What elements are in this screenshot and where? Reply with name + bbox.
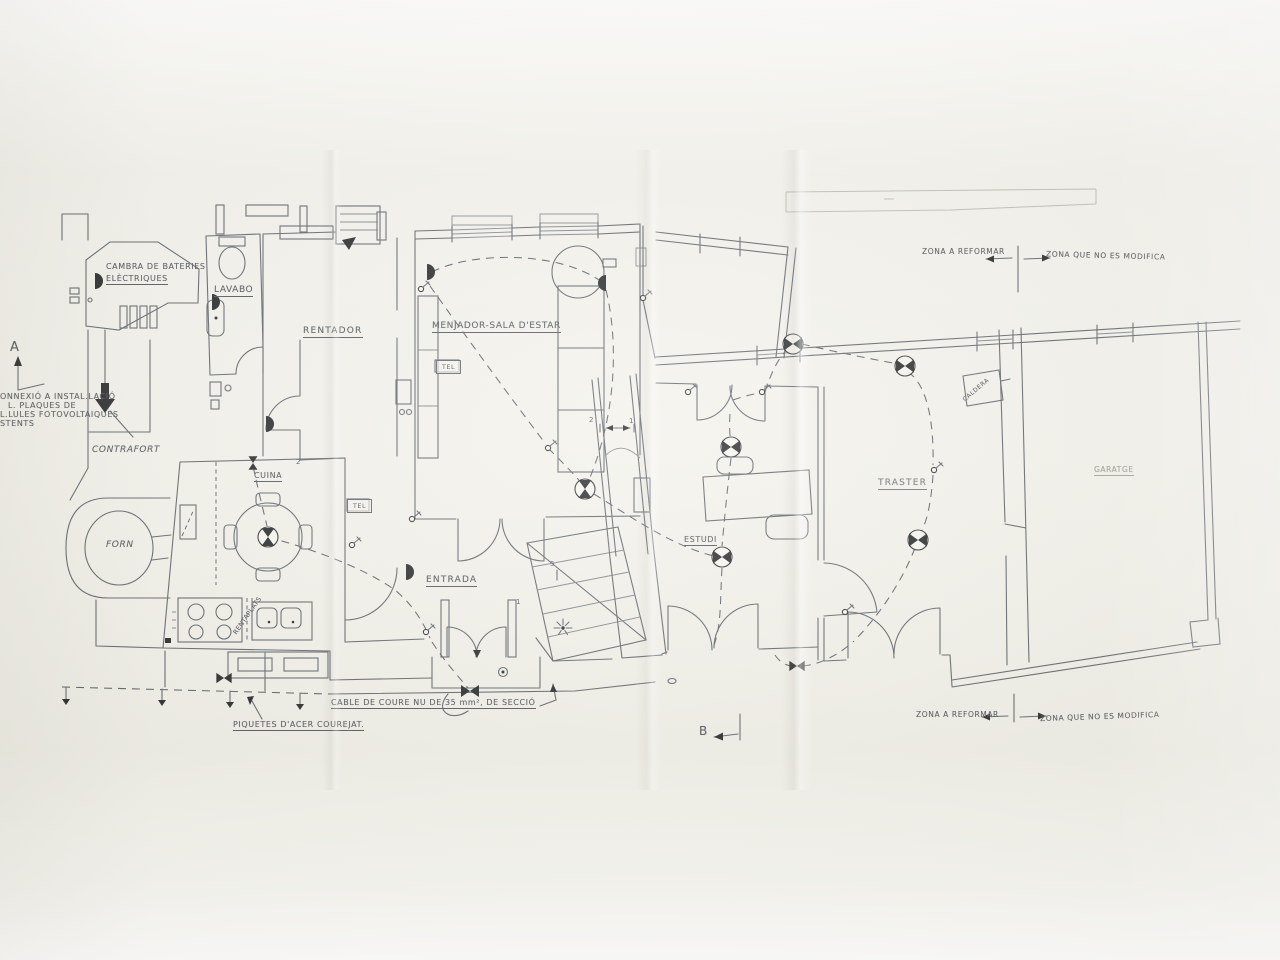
- tel-outlet-label: TEL: [347, 499, 372, 513]
- ground-stake-icon: [296, 693, 304, 710]
- room-label-garatge: GARATGE: [1094, 465, 1134, 476]
- sconce-icon: [598, 275, 606, 291]
- note-connexio-line1: ONNEXIÓ A INSTAL.LACIÓ: [0, 392, 116, 401]
- ground-stake-icon: [226, 691, 234, 708]
- wall-light-icon: [249, 456, 258, 470]
- section-marker-b-arrow: [714, 714, 740, 741]
- room-label-rentador: RENTADOR: [303, 326, 363, 338]
- sconce-icon: [95, 273, 103, 289]
- section-marker-b: B: [699, 724, 708, 738]
- note-connexio-line2: L. PLAQUES DE: [8, 401, 76, 410]
- wiring-cables: [253, 257, 933, 688]
- room-label-estudi: ESTUDI: [684, 535, 717, 546]
- zone-label-reformar-top: ZONA A REFORMAR: [922, 247, 1005, 256]
- ground-stake-icon: [158, 689, 166, 706]
- estudi-room: [656, 383, 877, 660]
- switch-icon: [418, 281, 430, 292]
- stair-count-number: 5: [550, 560, 554, 568]
- ceiling-light-icon: [783, 334, 803, 354]
- switch-icon: [685, 384, 697, 395]
- wall-light-icon: [461, 685, 479, 697]
- wall-light-icon: [216, 673, 231, 683]
- section-marker-a: A: [10, 340, 20, 355]
- dimension-number: 1: [516, 598, 520, 606]
- room-label-entrada: ENTRADA: [426, 575, 477, 587]
- floor-plan-linework: [0, 0, 1280, 960]
- dimension-number: 2: [296, 458, 300, 466]
- switch-icon: [423, 624, 435, 635]
- traster-room: [824, 328, 1029, 686]
- adjacent-sheet-edge: [786, 189, 1096, 212]
- ground-stake-icon: [62, 688, 70, 705]
- ceiling-light-icon: [895, 356, 915, 376]
- room-label-lavabo: LAVABO: [214, 285, 253, 297]
- switch-icon: [640, 290, 652, 301]
- ceiling-light-icon: [712, 547, 732, 567]
- dimension-number: 2: [589, 416, 593, 424]
- room-label-cuina: CUINA: [254, 471, 282, 482]
- room-label-menjador: MENJADOR-SALA D'ESTAR: [432, 321, 561, 333]
- room-label-cambra-line1: CAMBRA DE BATERIES: [106, 262, 206, 271]
- lavabo-room: [206, 234, 263, 409]
- ceiling-light-icon: [258, 527, 278, 547]
- label-contrafort: CONTRAFORT: [92, 445, 160, 455]
- note-cable: CABLE DE COURE NU DE 35 mm², DE SECCIÓ: [331, 698, 536, 709]
- ceiling-light-icon: [575, 479, 595, 499]
- garatge-room: [952, 322, 1220, 687]
- dimension-number: 1: [629, 417, 633, 425]
- battery-room: [70, 242, 199, 437]
- zone-label-reformar-bottom: ZONA A REFORMAR: [916, 710, 999, 719]
- kitchen-room: [163, 458, 432, 680]
- switch-icon: [349, 537, 361, 548]
- note-connexio-line3: L.LULES FOTOVOLTAIQUES: [0, 410, 119, 419]
- wall-stubs-top: [62, 205, 598, 240]
- scanned-floor-plan-photo: CAMBRA DE BATERIES ELÈCTRIQUES LAVABO RE…: [0, 0, 1280, 960]
- ceiling-light-icon: [908, 530, 928, 550]
- section-marker-a-arrow: [14, 356, 44, 390]
- sconce-icon: [406, 564, 414, 580]
- wall-light-icon: [789, 661, 804, 671]
- switch-icon: [545, 440, 557, 451]
- sconce-icon: [427, 264, 435, 280]
- note-connexio-line4: STENTS: [0, 419, 35, 428]
- note-piquetes: PIQUETES D'ACER COUREJAT.: [233, 720, 364, 731]
- ceiling-light-icon: [721, 437, 741, 457]
- room-label-cambra-line2: ELÈCTRIQUES: [106, 274, 168, 285]
- room-label-forn: FORN: [106, 540, 134, 550]
- room-label-traster: TRASTER: [878, 478, 927, 490]
- forn-oven: [66, 330, 171, 648]
- tel-outlet-label: TEL: [436, 360, 461, 374]
